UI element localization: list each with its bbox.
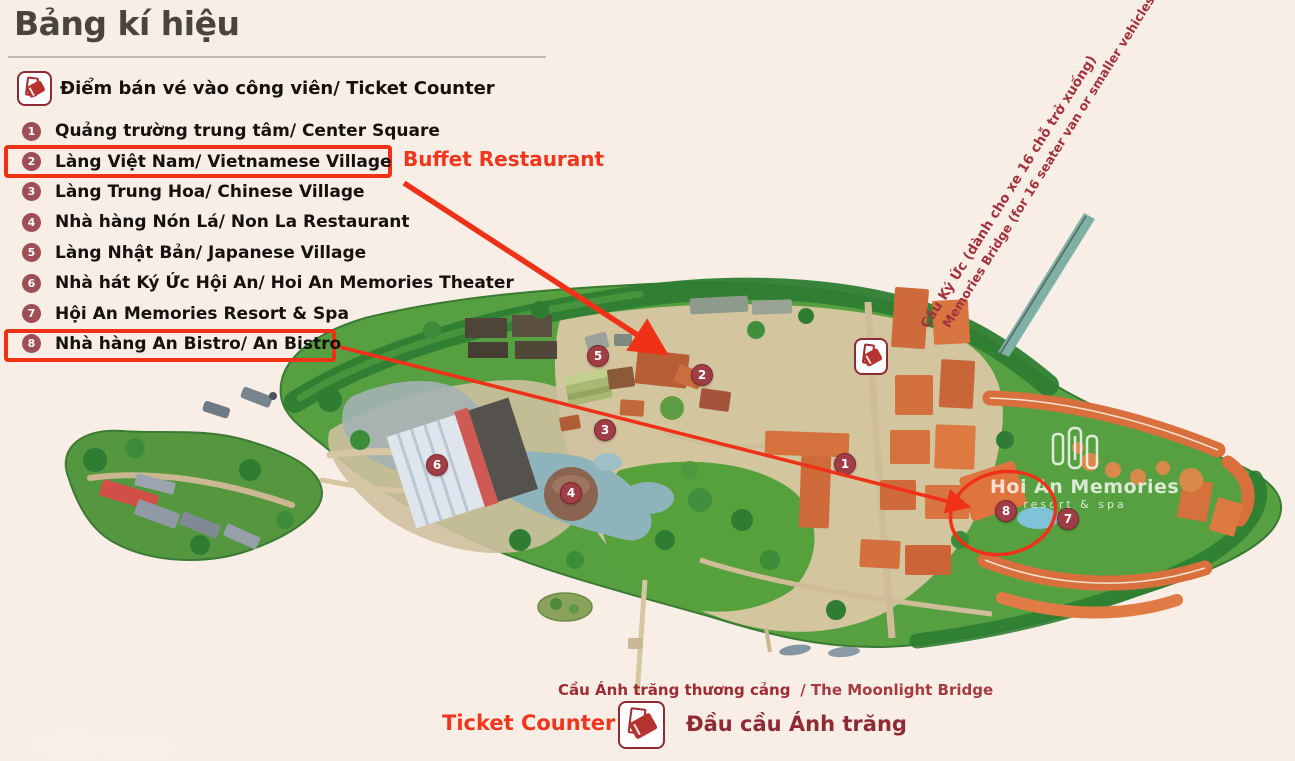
- legend-label-6: Nhà hát Ký Ức Hội An/ Hoi An Memories Th…: [55, 273, 514, 293]
- legend-item-7: 7 Hội An Memories Resort & Spa: [22, 298, 514, 328]
- map-marker-5: 5: [587, 345, 609, 367]
- moonlight-head-label: Đầu cầu Ánh trăng: [686, 712, 907, 736]
- legend-badge-3: 3: [22, 182, 41, 201]
- legend-label-2: Làng Việt Nam/ Vietnamese Village: [55, 152, 392, 172]
- map-marker-6: 6: [426, 454, 448, 476]
- map-marker-2: 2: [691, 364, 713, 386]
- moonlight-caption-vi: Cầu Ánh trăng thương cảng: [558, 681, 790, 699]
- boats-left: [202, 386, 277, 419]
- legend-badge-4: 4: [22, 213, 41, 232]
- map-marker-1: 1: [834, 453, 856, 475]
- legend-badge-1: 1: [22, 122, 41, 141]
- bottom-ticket-icon: [618, 701, 665, 749]
- legend-badge-8: 8: [22, 334, 41, 353]
- legend-badge-6: 6: [22, 274, 41, 293]
- map-marker-4: 4: [560, 482, 582, 504]
- legend-label-5: Làng Nhật Bản/ Japanese Village: [55, 243, 366, 263]
- map-marker-7: 7: [1057, 508, 1079, 530]
- legend-item-3: 3 Làng Trung Hoa/ Chinese Village: [22, 177, 514, 207]
- legend-label-3: Làng Trung Hoa/ Chinese Village: [55, 182, 365, 202]
- moonlight-pier: [628, 580, 645, 695]
- legend-item-4: 4 Nhà hàng Nón Lá/ Non La Restaurant: [22, 207, 514, 237]
- legend-badge-7: 7: [22, 304, 41, 323]
- legend-badge-2: 2: [22, 152, 41, 171]
- park-map-page: Hoi An Memories resort & spa 1 2 3 4 5 6…: [0, 0, 1295, 761]
- legend-item-5: 5 Làng Nhật Bản/ Japanese Village: [22, 238, 514, 268]
- legend-badge-5: 5: [22, 243, 41, 262]
- map-marker-8: 8: [995, 500, 1017, 522]
- legend-label-7: Hội An Memories Resort & Spa: [55, 304, 349, 324]
- legend-label-4: Nhà hàng Nón Lá/ Non La Restaurant: [55, 212, 410, 232]
- legend-label-8: Nhà hàng An Bistro/ An Bistro: [55, 334, 341, 354]
- legend-label-1: Quảng trường trung tâm/ Center Square: [55, 121, 440, 141]
- legend-item-1: 1 Quảng trường trung tâm/ Center Square: [22, 116, 514, 146]
- legend-item-8: 8 Nhà hàng An Bistro/ An Bistro: [22, 329, 514, 359]
- legend-list: 1 Quảng trường trung tâm/ Center Square …: [22, 116, 514, 359]
- ticket-counter-label: Ticket Counter: [442, 711, 615, 735]
- map-ticket-counter-icon: [854, 338, 888, 375]
- legend-item-2: 2 Làng Việt Nam/ Vietnamese Village: [22, 146, 514, 176]
- small-islet: [538, 593, 592, 621]
- moonlight-bridge-caption: Cầu Ánh trăng thương cảng / The Moonligh…: [558, 681, 993, 699]
- legend-item-6: 6 Nhà hát Ký Ức Hội An/ Hoi An Memories …: [22, 268, 514, 298]
- corner-watermark: [32, 731, 175, 760]
- park-aerial-map: [0, 0, 1295, 761]
- moonlight-caption-en: / The Moonlight Bridge: [800, 681, 993, 699]
- tail-island: [66, 431, 322, 560]
- map-marker-3: 3: [594, 419, 616, 441]
